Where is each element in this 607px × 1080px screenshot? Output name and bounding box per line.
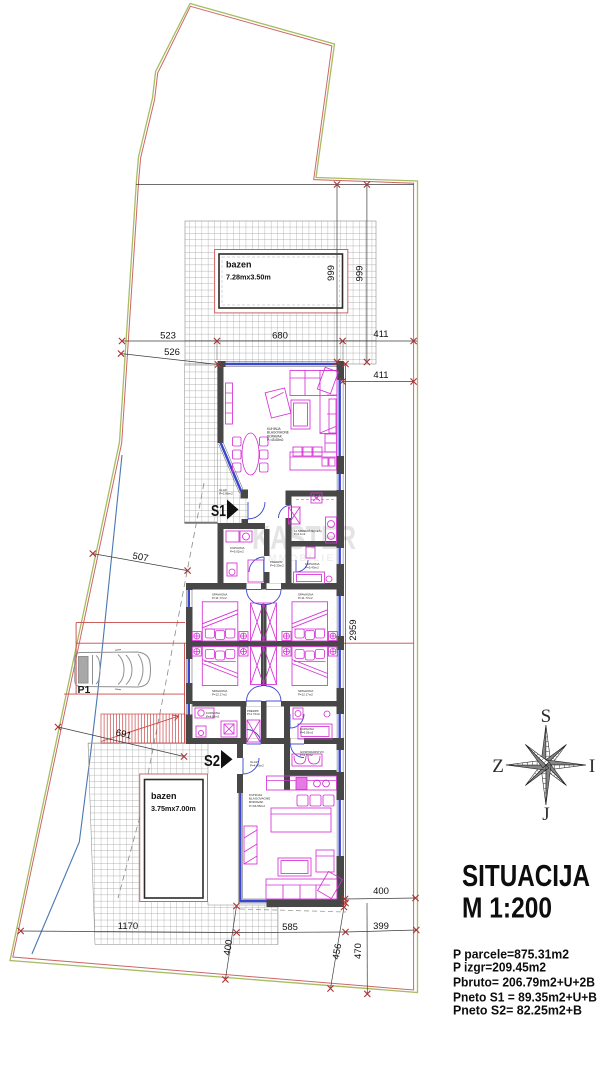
svg-text:999: 999 xyxy=(355,266,366,282)
svg-text:PREDPRP=5.33m2: PREDPRP=5.33m2 xyxy=(270,560,284,567)
svg-text:KUPAONAP=6.05m2: KUPAONAP=6.05m2 xyxy=(300,727,314,734)
svg-text:585: 585 xyxy=(282,922,298,933)
svg-text:P1: P1 xyxy=(78,684,91,696)
svg-text:523: 523 xyxy=(160,331,176,342)
svg-text:S2: S2 xyxy=(204,753,220,770)
svg-text:7.28mx3.50m: 7.28mx3.50m xyxy=(226,273,271,282)
svg-text:SPAVAONAP=12.17m2: SPAVAONAP=12.17m2 xyxy=(298,689,313,696)
svg-text:400: 400 xyxy=(373,886,389,897)
svg-text:KUPAONAP=5.43m2: KUPAONAP=5.43m2 xyxy=(305,562,319,569)
svg-text:M 1:200: M 1:200 xyxy=(462,893,552,925)
svg-text:KUPAONAP=4.83m2: KUPAONAP=4.83m2 xyxy=(206,711,220,718)
svg-text:SPAVAONAP=11.77m2: SPAVAONAP=11.77m2 xyxy=(212,593,227,600)
svg-text:SPAVAONAP=11.77m2: SPAVAONAP=11.77m2 xyxy=(298,593,313,600)
svg-text:S1: S1 xyxy=(211,503,226,520)
svg-text:411: 411 xyxy=(373,370,388,381)
svg-text:SITUACIJA: SITUACIJA xyxy=(462,858,590,893)
svg-text:S: S xyxy=(541,706,552,727)
svg-text:399: 399 xyxy=(373,921,389,932)
svg-text:3.75mx7.00m: 3.75mx7.00m xyxy=(151,804,196,813)
svg-text:Pbruto= 206.79m2+U+2B: Pbruto= 206.79m2+U+2B xyxy=(453,975,595,990)
svg-text:Pneto S2= 82.25m2+B: Pneto S2= 82.25m2+B xyxy=(453,1003,582,1018)
svg-text:1170: 1170 xyxy=(118,921,138,932)
svg-text:Z: Z xyxy=(492,756,504,777)
svg-text:bazen: bazen xyxy=(226,260,252,270)
svg-text:2959: 2959 xyxy=(348,619,359,640)
svg-text:I: I xyxy=(589,756,595,777)
svg-text:bazen: bazen xyxy=(151,791,177,801)
svg-text:680: 680 xyxy=(272,331,288,342)
svg-text:J: J xyxy=(542,804,549,825)
svg-text:526: 526 xyxy=(164,347,180,358)
svg-text:SPAVAONAP=12.17m2: SPAVAONAP=12.17m2 xyxy=(212,689,227,696)
svg-text:KUPAONAP=5.02m2: KUPAONAP=5.02m2 xyxy=(230,546,244,553)
svg-text:P izgr=209.45m2: P izgr=209.45m2 xyxy=(453,960,546,975)
svg-text:470: 470 xyxy=(353,943,364,959)
svg-text:999: 999 xyxy=(326,265,337,281)
svg-text:411: 411 xyxy=(373,329,388,340)
svg-text:PREDPRP=1.73m2: PREDPRP=1.73m2 xyxy=(247,709,260,716)
